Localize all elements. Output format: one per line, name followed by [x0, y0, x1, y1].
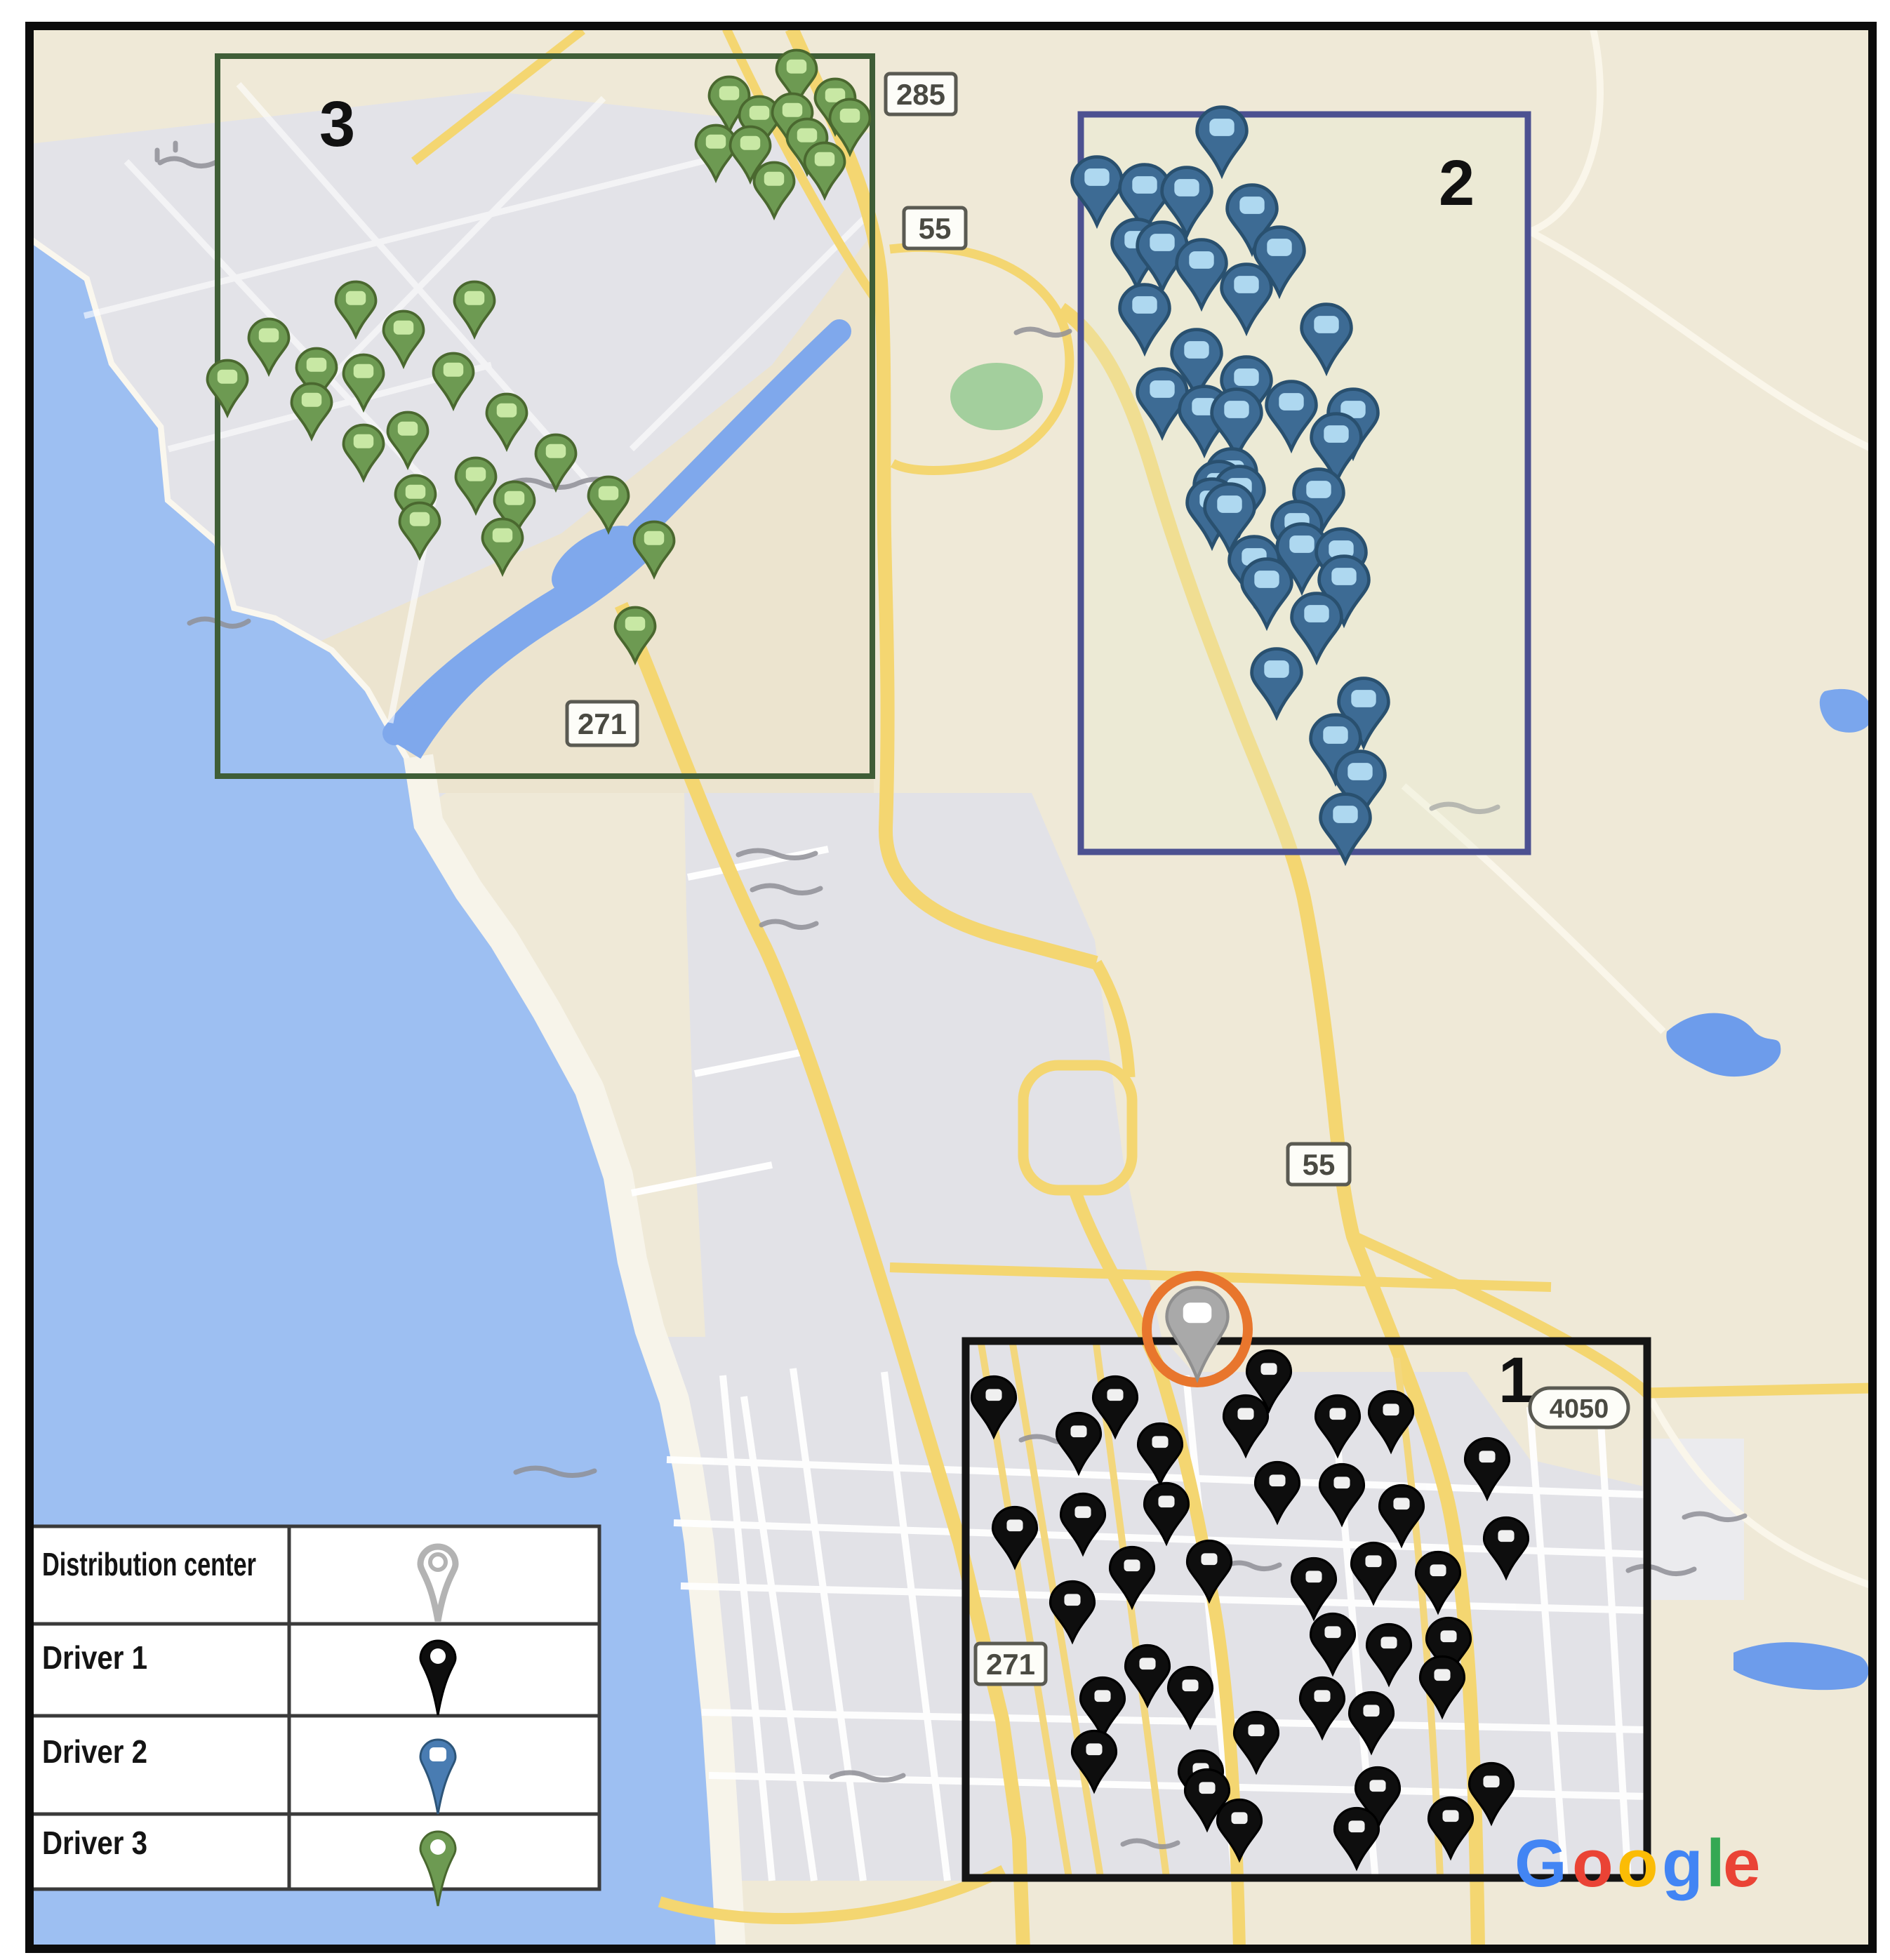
svg-text:G: G	[1515, 1826, 1567, 1901]
svg-text:55: 55	[1303, 1148, 1336, 1181]
svg-text:3: 3	[319, 88, 355, 160]
svg-text:e: e	[1723, 1826, 1760, 1901]
svg-text:2: 2	[1439, 147, 1475, 219]
svg-text:l: l	[1706, 1826, 1725, 1901]
svg-text:271: 271	[578, 707, 627, 740]
svg-text:4050: 4050	[1550, 1394, 1609, 1424]
svg-text:g: g	[1662, 1826, 1703, 1901]
svg-text:271: 271	[986, 1648, 1035, 1681]
svg-text:Distribution center: Distribution center	[42, 1546, 256, 1582]
svg-text:285: 285	[896, 78, 945, 111]
svg-text:Driver 2: Driver 2	[42, 1733, 147, 1770]
svg-text:o: o	[1572, 1826, 1613, 1901]
svg-text:55: 55	[919, 212, 952, 245]
svg-text:o: o	[1617, 1826, 1658, 1901]
svg-text:Driver 1: Driver 1	[42, 1639, 147, 1676]
svg-text:Driver 3: Driver 3	[42, 1825, 147, 1861]
